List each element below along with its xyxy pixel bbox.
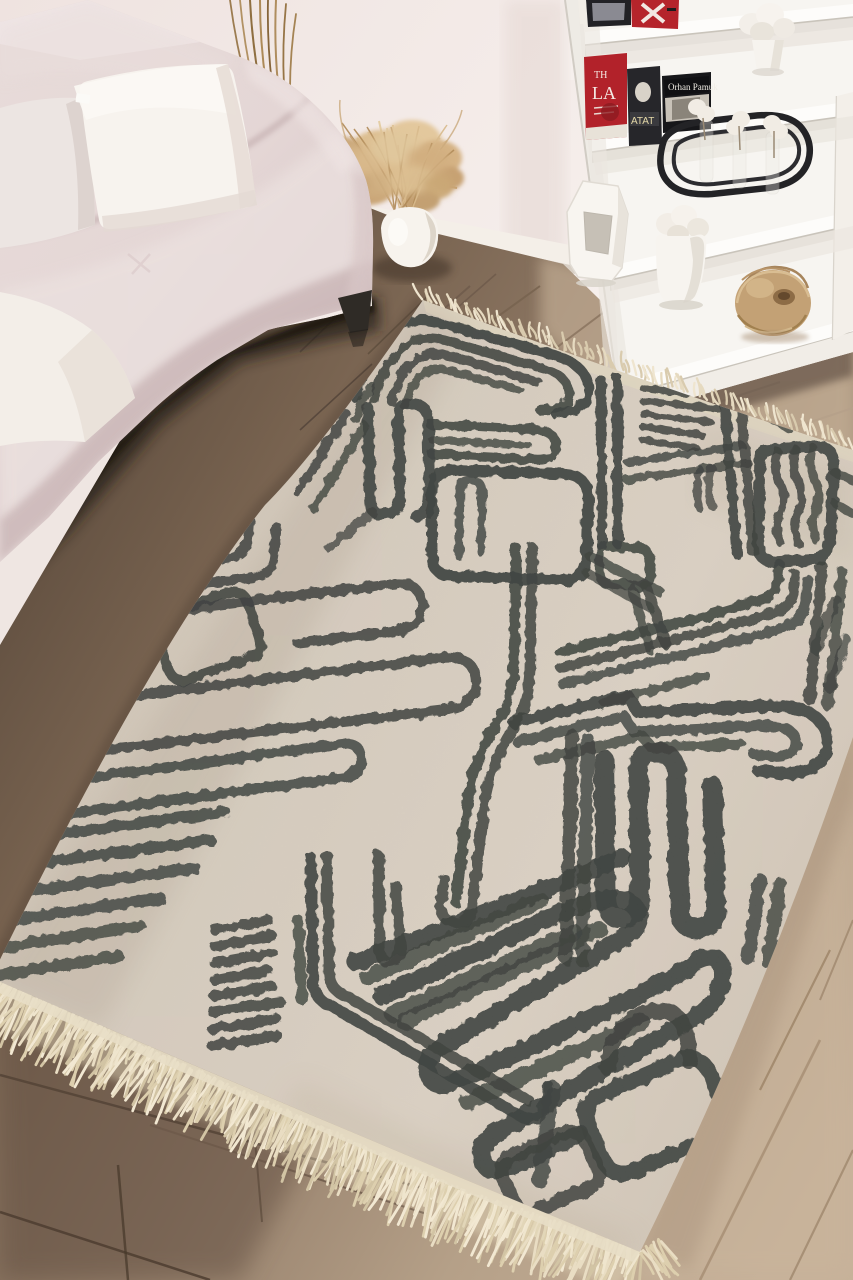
svg-text:ATAT: ATAT: [631, 116, 654, 127]
svg-text:TH: TH: [594, 70, 607, 81]
svg-text:Orhan Pamuk: Orhan Pamuk: [668, 82, 718, 92]
svg-text:LA: LA: [592, 83, 616, 103]
